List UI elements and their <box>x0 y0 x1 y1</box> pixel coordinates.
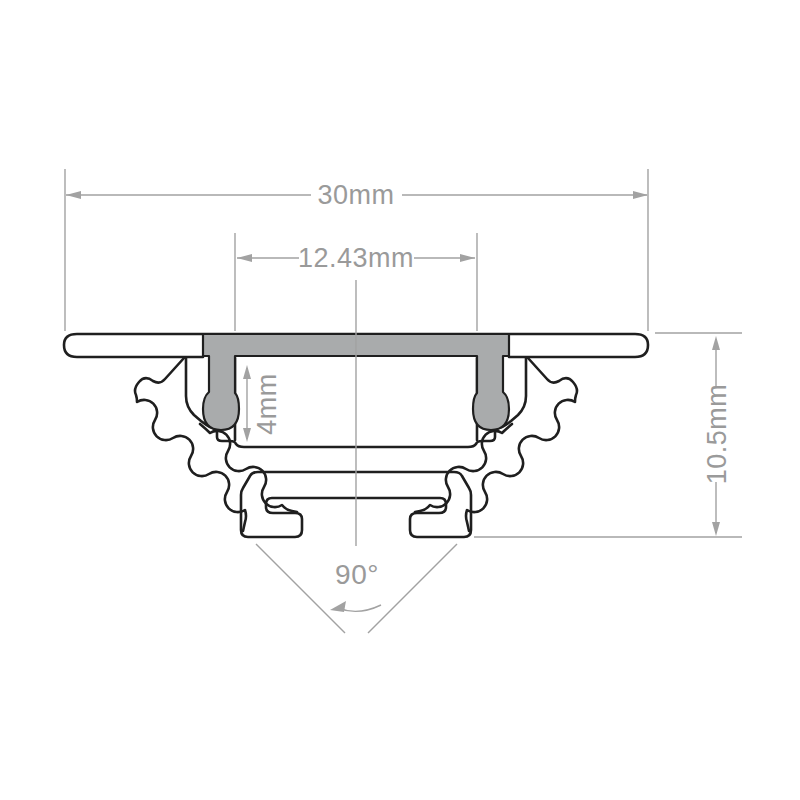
corner-profile-cross-section-diagram: 30mm 12.43mm 4mm 10.5mm 90° <box>0 0 800 800</box>
label-inner-opening-width: 12.43mm <box>298 243 414 273</box>
label-corner-angle: 90° <box>335 559 379 590</box>
arrow-4mm-down-icon <box>243 428 251 442</box>
arrow-1243-left-icon <box>237 254 252 262</box>
technical-drawing-canvas: 30mm 12.43mm 4mm 10.5mm 90° <box>0 0 800 800</box>
arrow-105-down-icon <box>712 522 720 536</box>
dimension-lines <box>65 169 742 633</box>
arrow-angle-arc-icon <box>330 601 346 612</box>
arrow-1243-right-icon <box>460 254 475 262</box>
arrow-4mm-up-icon <box>243 365 251 379</box>
label-overall-width: 30mm <box>317 180 394 210</box>
arrow-30mm-right-icon <box>633 191 648 199</box>
angle-leg-left <box>256 544 345 633</box>
arrow-105-up-icon <box>712 336 720 350</box>
angle-leg-right <box>368 544 457 633</box>
label-recess-depth: 4mm <box>252 373 282 435</box>
arrow-30mm-left-icon <box>66 191 81 199</box>
label-overall-height: 10.5mm <box>702 384 732 485</box>
